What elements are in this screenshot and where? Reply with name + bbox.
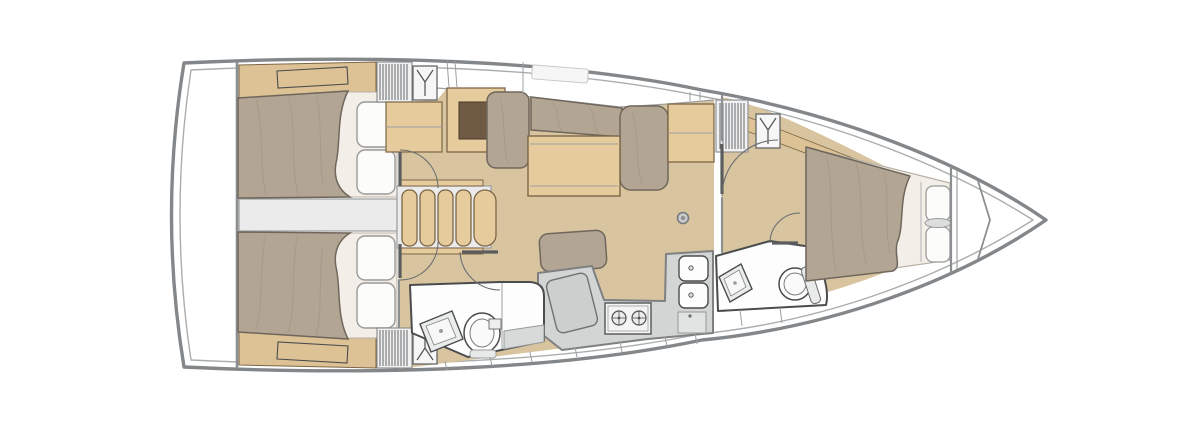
pillow xyxy=(357,283,395,328)
stair-tread xyxy=(420,190,435,246)
settee-chaise-cushion xyxy=(620,106,668,190)
drain-icon xyxy=(439,329,443,333)
double-berth xyxy=(238,232,350,339)
locker-knob xyxy=(688,314,691,317)
companionway-stairs xyxy=(397,180,496,254)
chart-locker-inset xyxy=(459,102,491,139)
deck-plan-page xyxy=(0,0,1200,425)
aft-cabin-starboard xyxy=(238,232,399,369)
drain-icon xyxy=(689,266,693,270)
stair-tread xyxy=(438,190,453,246)
toilet-pump xyxy=(489,319,501,329)
stair-tread xyxy=(402,190,417,246)
aft-cabin-port xyxy=(238,61,399,198)
drain-icon xyxy=(689,293,693,297)
pillow xyxy=(357,236,395,280)
mast-post-core xyxy=(681,216,685,220)
pillow xyxy=(926,186,950,221)
bedside-shelf xyxy=(925,219,951,228)
deck-plan-svg xyxy=(0,0,1200,425)
settee-end-cushion xyxy=(487,92,529,168)
stair-landing xyxy=(474,190,496,246)
nav-seat-cushion xyxy=(539,230,607,273)
pillow xyxy=(357,150,395,194)
stove xyxy=(605,303,651,334)
drain-icon xyxy=(733,281,737,285)
stair-tread xyxy=(456,190,471,246)
saloon-table xyxy=(528,136,620,196)
galley-locker-door xyxy=(678,312,706,333)
double-berth xyxy=(238,91,350,198)
toilet-base xyxy=(470,350,496,358)
pillow xyxy=(926,227,950,262)
hanging-locker-aft-port xyxy=(377,62,437,102)
engine-compartment xyxy=(239,199,397,231)
